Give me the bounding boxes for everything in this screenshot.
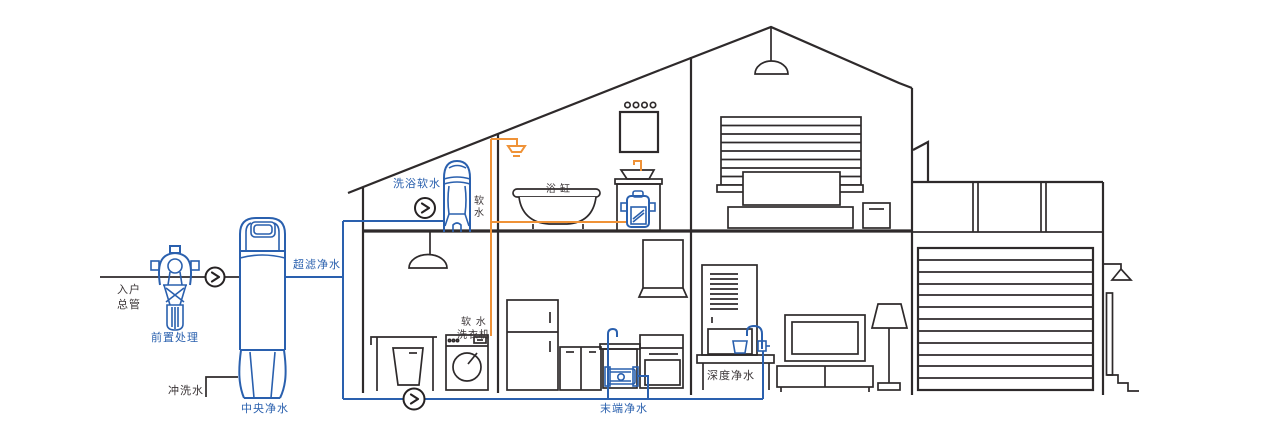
valve-icon-inlet — [206, 268, 225, 287]
valve-icon-softener — [415, 198, 435, 218]
garage-window-mullions — [973, 182, 1046, 232]
ultrafiltration-label: 超滤净水 — [293, 257, 341, 271]
mirror-lights-icon — [625, 102, 656, 107]
bedroom — [717, 27, 890, 228]
tv-stand — [777, 366, 873, 392]
kitchen-cabinets — [560, 347, 601, 390]
purified-water-pipes — [100, 221, 763, 399]
bedroom-pendant-lamp — [755, 27, 788, 74]
central-purifier-tank — [239, 218, 285, 398]
oven — [640, 335, 683, 388]
washing-machine — [446, 335, 488, 390]
undersink-purifier-vanity — [621, 191, 655, 227]
shower-softener-label: 洗浴软水 — [393, 176, 441, 190]
roof-left-slope — [348, 70, 660, 193]
bathtub-label: 浴缸 — [546, 182, 574, 195]
soft-water-pipes — [491, 139, 628, 336]
bed-base — [728, 207, 853, 228]
kitchen — [507, 240, 687, 390]
kitchen-faucet-icon — [608, 329, 617, 345]
water-cup-icon — [733, 341, 747, 353]
whole-house-water-system-diagram: 入户 总管 前置处理 冲洗水 中央净水 超滤净水 洗浴软水 软 水 浴缸 软 水… — [0, 0, 1280, 434]
vanity-mirror — [620, 102, 658, 152]
roof-main — [660, 27, 912, 88]
central-purifier-label: 中央净水 — [241, 401, 289, 415]
pre-filter-device — [151, 246, 199, 330]
outdoor-lamp-icon — [1103, 264, 1131, 280]
refrigerator — [507, 300, 558, 390]
garage — [913, 142, 1139, 395]
outdoor-steps — [1107, 375, 1139, 391]
range-hood — [639, 240, 687, 297]
utility-sink — [371, 337, 437, 391]
tv — [785, 315, 865, 361]
terminal-purifier-label: 末端净水 — [600, 401, 648, 415]
kitchen-ro-purifier — [605, 367, 638, 386]
flush-water-label: 冲洗水 — [168, 383, 204, 397]
washer-label-line1: 软 水 — [461, 315, 487, 328]
shower-branch — [491, 139, 517, 146]
bathroom — [513, 102, 662, 231]
shower-softener-tank — [444, 161, 470, 232]
shower-head-icon — [508, 146, 525, 156]
dispenser-vents-icon — [710, 274, 738, 309]
entry-main-label-line1: 入户 — [117, 282, 141, 296]
entry-main-label-line2: 总管 — [117, 297, 141, 311]
nightstand — [863, 203, 890, 228]
washer-drum-icon — [453, 353, 481, 381]
laundry-room — [371, 231, 488, 391]
washer-label-line2: 洗衣机 — [457, 328, 490, 341]
downspout — [1107, 293, 1113, 375]
garage-roof-edge — [913, 142, 928, 182]
flush-drain-pipe — [206, 377, 238, 397]
soft-water-pipe-label-char2: 水 — [474, 207, 485, 219]
valve-icon-ground — [404, 389, 425, 410]
laundry-pendant-lamp — [409, 231, 447, 268]
pre-filter-label: 前置处理 — [151, 330, 199, 344]
floor-lamp — [872, 304, 907, 390]
deep-purifier-label: 深度净水 — [707, 368, 755, 382]
soft-water-pipe-label-char1: 软 — [474, 194, 485, 207]
bed-headboard — [743, 172, 840, 205]
garage-door — [918, 248, 1093, 390]
